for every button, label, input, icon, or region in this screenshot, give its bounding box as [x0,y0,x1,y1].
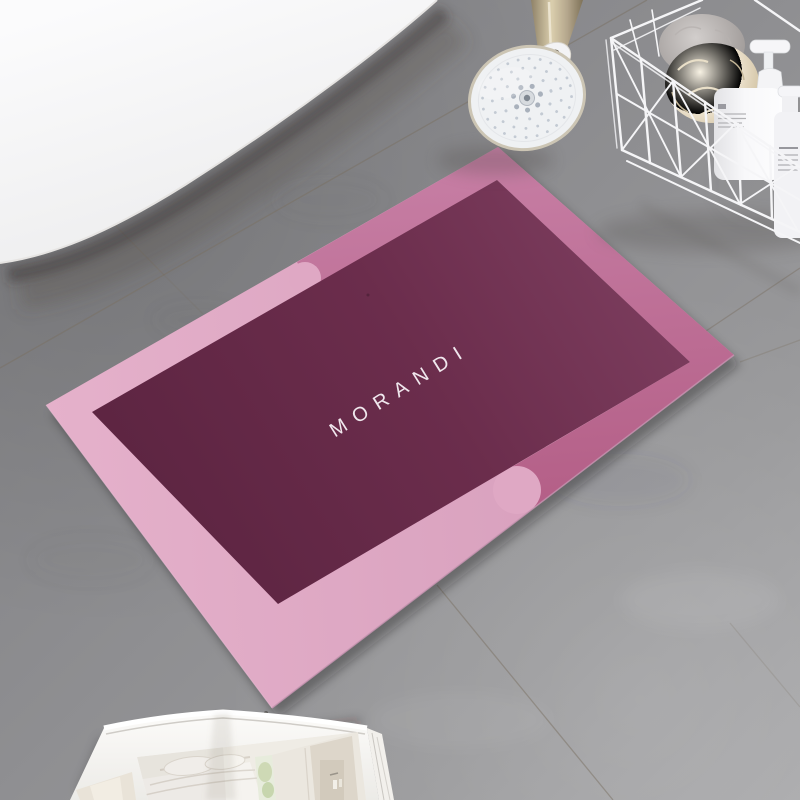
pump-collar [757,69,783,91]
pump-collar [782,96,798,114]
pump-top [778,86,800,97]
scene-photo: MORANDI [0,0,800,800]
bathroom-scene: MORANDI [0,0,800,800]
mat-speck [367,294,370,297]
pump-stem [764,52,773,71]
pump-top [750,40,790,53]
magazine [70,712,394,800]
bottle-body [774,112,800,238]
